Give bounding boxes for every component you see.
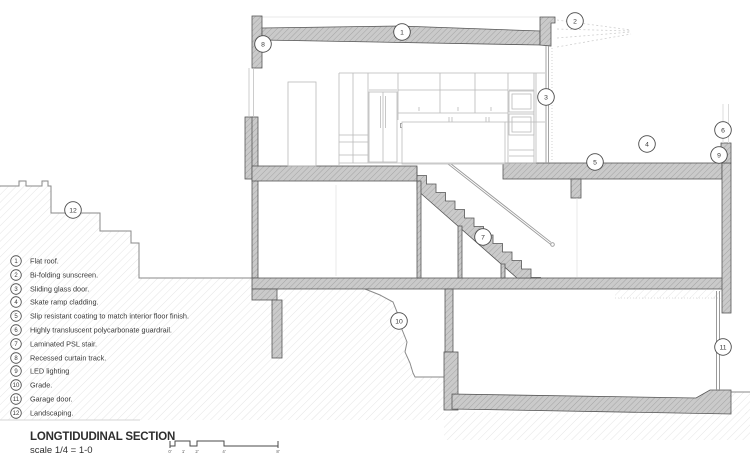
drawing-scale-note: scale 1/4 = 1-0: [30, 445, 93, 456]
stair-support-wall-1: [417, 181, 421, 278]
legend-num: 11: [13, 397, 20, 403]
legend-label: Flat roof.: [30, 257, 59, 266]
scale-label-3: 4': [222, 449, 225, 454]
earth-under-garage: [444, 412, 750, 440]
callout-7-num: 7: [481, 234, 485, 241]
legend-item-6: 6Highly transluscent polycarbonate guard…: [11, 325, 172, 336]
callout-8: 8: [255, 36, 272, 53]
legend-label: Grade.: [30, 381, 52, 390]
callout-9-num: 9: [717, 152, 721, 159]
roof-parapet: [540, 17, 555, 46]
legend-label: Landscaping.: [30, 409, 73, 418]
left-wall: [252, 117, 258, 278]
callout-3: 3: [538, 89, 555, 106]
scale-bar: 0' 1' 2' 4' 8': [168, 441, 279, 454]
callout-11: 11: [715, 339, 732, 356]
longitudinal-section-drawing: 1 2 3 4 5 6 7 8 9 10 11 12 1Flat roof. 2…: [0, 0, 750, 458]
scale-label-1: 1': [182, 449, 185, 454]
legend-label: Recessed curtain track.: [30, 354, 106, 363]
callout-5: 5: [587, 154, 604, 171]
callout-12-num: 12: [69, 207, 77, 214]
foundation-stem-wall: [272, 300, 282, 358]
stair-support-wall-3: [501, 264, 505, 278]
callout-11-num: 11: [719, 344, 726, 351]
callout-9: 9: [711, 147, 728, 164]
callout-1-num: 1: [400, 29, 404, 36]
fridge: [369, 90, 397, 162]
callout-4: 4: [639, 136, 656, 153]
title-block: LONGTIDUDINAL SECTION scale 1/4 = 1-0: [30, 431, 175, 456]
legend-item-5: 5Slip resistant coating to match interio…: [11, 311, 189, 322]
callout-2: 2: [567, 13, 584, 30]
callout-10: 10: [391, 313, 408, 330]
legend-label: Skate ramp cladding.: [30, 298, 99, 307]
main-floor-slab: [252, 166, 417, 181]
scale-label-4: 8': [276, 449, 279, 454]
legend-num: 12: [13, 411, 20, 417]
garage-left-wall: [445, 289, 453, 352]
legend-label: Laminated PSL stair.: [30, 340, 97, 349]
scale-label-0: 0': [168, 449, 171, 454]
earth-right-of-garage: [731, 392, 750, 414]
callout-6: 6: [715, 122, 732, 139]
legend-label: Slip resistant coating to match interior…: [30, 312, 189, 321]
callout-7: 7: [475, 229, 492, 246]
callout-4-num: 4: [645, 141, 649, 148]
interior-door: [288, 82, 316, 166]
deck-downstand-beam: [571, 179, 581, 198]
callout-3-num: 3: [544, 94, 548, 101]
callout-1: 1: [394, 24, 411, 41]
callout-12: 12: [65, 202, 82, 219]
garage-floor-slab: [452, 390, 731, 414]
legend-label: Highly transluscent polycarbonate guardr…: [30, 326, 172, 335]
right-wall: [722, 163, 731, 313]
legend-num: 10: [13, 383, 20, 389]
legend-label: LED lighting: [30, 367, 69, 376]
stair-support-wall-2: [458, 226, 462, 278]
legend-label: Sliding glass door.: [30, 285, 89, 294]
callout-5-num: 5: [593, 159, 597, 166]
callout-2-num: 2: [573, 18, 577, 25]
legend-label: Garage door.: [30, 395, 73, 404]
drawing-title: LONGTIDUDINAL SECTION: [30, 431, 175, 443]
drawing-sheet: 1 2 3 4 5 6 7 8 9 10 11 12 1Flat roof. 2…: [0, 0, 750, 458]
callout-10-num: 10: [395, 318, 403, 325]
scale-label-2: 2': [195, 449, 198, 454]
legend-label: Bi-folding sunscreen.: [30, 271, 98, 280]
callout-8-num: 8: [261, 41, 265, 48]
callout-6-num: 6: [721, 127, 725, 134]
kitchen-island: [402, 117, 545, 164]
deck-slab: [503, 163, 722, 179]
mid-level-slab: [252, 278, 723, 289]
scale-bar-profile: [170, 441, 278, 448]
mid-slab-thickened-edge: [252, 289, 277, 300]
wall-ovens: [509, 73, 536, 163]
